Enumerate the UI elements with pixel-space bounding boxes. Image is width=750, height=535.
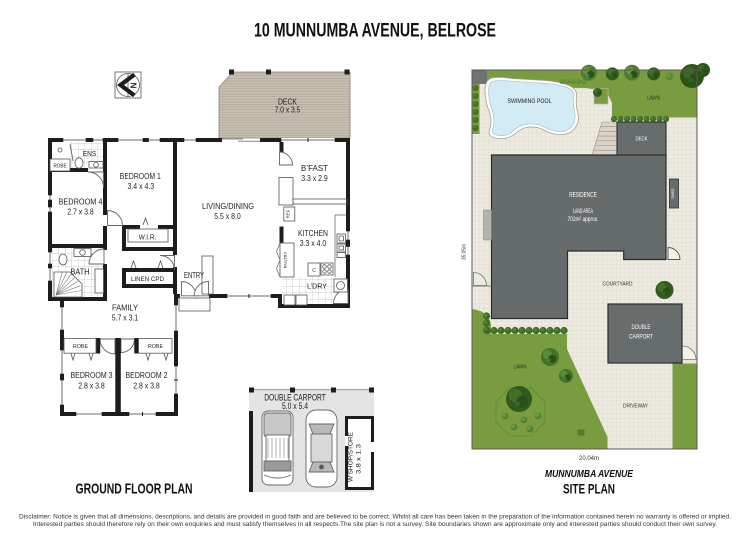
svg-text:DECK: DECK	[636, 137, 648, 143]
svg-text:5.5 x 8.0: 5.5 x 8.0	[214, 211, 241, 221]
svg-text:LIVING/DINING: LIVING/DINING	[202, 201, 254, 211]
svg-text:ENTRY: ENTRY	[184, 271, 204, 280]
svg-text:MUNNUMBA AVENUE: MUNNUMBA AVENUE	[545, 468, 634, 480]
svg-text:5.0 x 5.4: 5.0 x 5.4	[282, 401, 308, 411]
svg-text:REF: REF	[285, 209, 290, 218]
svg-text:35.05m: 35.05m	[462, 244, 468, 260]
svg-text:7.0 x 3.5: 7.0 x 3.5	[275, 106, 301, 115]
svg-text:LAND AREA: LAND AREA	[573, 209, 593, 215]
svg-text:3.3 x 4.0: 3.3 x 4.0	[300, 238, 327, 248]
svg-text:RESIDENCE: RESIDENCE	[569, 192, 597, 199]
svg-text:2.8 x 3.8: 2.8 x 3.8	[78, 380, 105, 390]
svg-text:702m² approx.: 702m² approx.	[568, 217, 599, 223]
svg-text:BEDROOM 2: BEDROOM 2	[126, 370, 168, 380]
svg-text:C: C	[312, 268, 316, 274]
svg-text:SITE PLAN: SITE PLAN	[563, 481, 615, 497]
svg-text:N: N	[130, 82, 139, 88]
svg-text:20.04m: 20.04m	[579, 455, 599, 462]
svg-text:Interested parties should ther: Interested parties should therefore rely…	[33, 521, 717, 528]
svg-text:GROUND FLOOR PLAN: GROUND FLOOR PLAN	[76, 481, 193, 498]
svg-text:SHED: SHED	[670, 188, 675, 198]
svg-text:COURTYARD: COURTYARD	[603, 282, 633, 288]
svg-text:3.8 x 1.3: 3.8 x 1.3	[357, 443, 363, 474]
svg-text:ROBE: ROBE	[54, 164, 68, 170]
svg-text:W’SHOP/STORE: W’SHOP/STORE	[349, 432, 355, 482]
svg-text:KITCHEN: KITCHEN	[298, 228, 328, 238]
svg-text:DOUBLE: DOUBLE	[632, 324, 651, 331]
svg-text:B’FAST: B’FAST	[301, 163, 328, 173]
svg-text:ENS: ENS	[83, 151, 97, 158]
svg-text:2.7 x 3.8: 2.7 x 3.8	[67, 207, 94, 217]
svg-text:FAMILY: FAMILY	[112, 303, 138, 313]
svg-text:LINEN CPD: LINEN CPD	[131, 277, 165, 283]
svg-text:3.3 x 2.9: 3.3 x 2.9	[301, 173, 328, 183]
svg-text:BEDROOM 3: BEDROOM 3	[71, 370, 113, 380]
svg-text:LAWN: LAWN	[514, 365, 527, 371]
svg-text:PANTRY: PANTRY	[283, 251, 288, 268]
svg-text:5.7 x 3.1: 5.7 x 3.1	[112, 313, 139, 323]
svg-text:L’DRY: L’DRY	[307, 282, 327, 291]
svg-text:BATH: BATH	[71, 268, 90, 277]
svg-text:BEDROOM 4: BEDROOM 4	[59, 197, 103, 207]
svg-text:ROBE: ROBE	[148, 344, 163, 350]
svg-text:BEDROOM 1: BEDROOM 1	[120, 171, 161, 181]
svg-text:SWIMMING POOL: SWIMMING POOL	[508, 99, 553, 105]
svg-text:W.I.R.: W.I.R.	[139, 235, 157, 242]
svg-text:2.8 x 3.8: 2.8 x 3.8	[133, 380, 160, 390]
svg-text:LAWN: LAWN	[647, 96, 660, 102]
svg-text:Disclaimer: Notice is given th: Disclaimer: Notice is given that all dim…	[19, 514, 731, 521]
svg-text:DRIVEWAY: DRIVEWAY	[623, 404, 648, 410]
svg-text:10 MUNNUMBA AVENUE, BELROSE: 10 MUNNUMBA AVENUE, BELROSE	[254, 21, 496, 42]
svg-text:ROBE: ROBE	[73, 344, 88, 350]
svg-text:3.4 x 4.3: 3.4 x 4.3	[128, 181, 155, 191]
svg-text:CARPORT: CARPORT	[629, 334, 653, 341]
